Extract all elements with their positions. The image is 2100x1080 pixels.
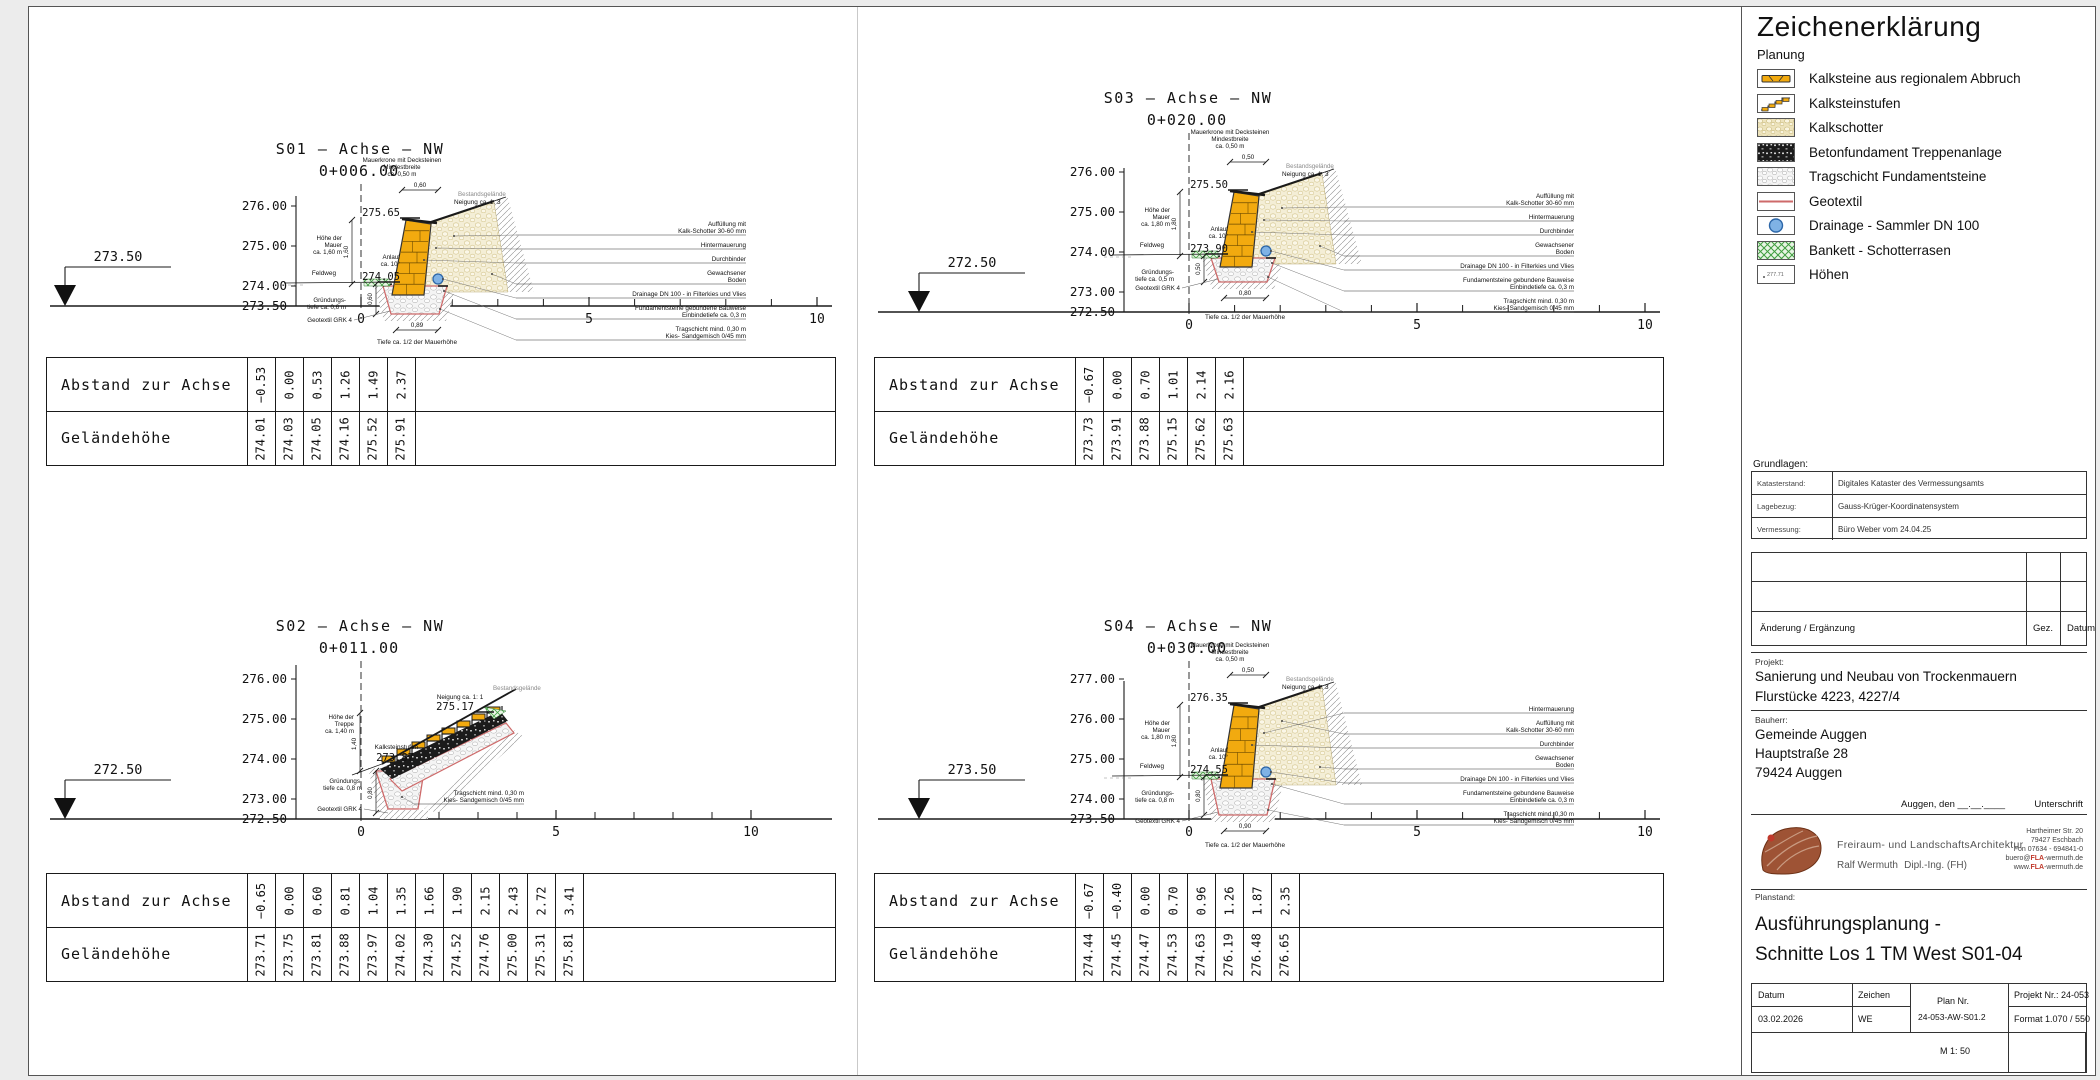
svg-text:1,60: 1,60: [343, 245, 350, 258]
svg-text:0+011.00: 0+011.00: [319, 639, 399, 657]
format-value: Format 1.070 / 550: [2014, 1014, 2090, 1024]
drainage-icon: [1261, 246, 1271, 256]
svg-text:Feldweg: Feldweg: [1140, 242, 1165, 249]
ref-marker: 272.50: [54, 762, 171, 819]
legend-item-label: Geotextil: [1809, 194, 1862, 209]
legend-item: Tragschicht Fundamentsteine: [1757, 165, 2089, 190]
svg-text:ca. 10°: ca. 10°: [381, 261, 401, 268]
abstand-value: 1.66: [415, 874, 443, 927]
svg-text:Fundamentsteine gebundene Bauw: Fundamentsteine gebundene Bauweise: [635, 305, 746, 312]
svg-text:S04 – Achse – NW: S04 – Achse – NW: [1104, 617, 1273, 635]
gelaende-value: 274.47: [1131, 928, 1159, 981]
abstand-value: 0.00: [275, 358, 303, 411]
svg-text:Tragschicht mind. 0,30 m: Tragschicht mind. 0,30 m: [454, 790, 524, 797]
svg-text:275.00: 275.00: [242, 238, 287, 253]
firm-logo: [1757, 824, 1825, 883]
abstand-value: 2.37: [387, 358, 415, 411]
abstand-value: 0.96: [1187, 874, 1215, 927]
svg-text:ca. 0,50 m: ca. 0,50 m: [1216, 143, 1245, 150]
gelaende-value: 273.73: [1075, 412, 1103, 465]
svg-text:Neigung ca. 1: 1: Neigung ca. 1: 1: [437, 694, 484, 701]
sections-area: 273.50276.00275.00274.00273.500510S01 – …: [29, 7, 1741, 1075]
gelaende-row-label: Geländehöhe: [61, 429, 171, 447]
svg-text:Auffüllung mit: Auffüllung mit: [708, 221, 746, 228]
abstand-value: 2.16: [1215, 358, 1243, 411]
aenderung-table: Änderung / Ergänzung Gez. Datum: [1751, 552, 2087, 646]
firm-address: Hartheimer Str. 2079427 EschbachFon 0763…: [2005, 827, 2083, 872]
svg-text:275.00: 275.00: [242, 711, 287, 726]
svg-text:Drainage DN 100 - in Filterkie: Drainage DN 100 - in Filterkies und Vlie…: [1460, 263, 1574, 270]
svg-text:Geotextil GRK 4: Geotextil GRK 4: [1135, 285, 1180, 292]
sheet-divider: [1741, 7, 1742, 1075]
svg-text:Gewachsener: Gewachsener: [1535, 242, 1574, 249]
svg-text:277.00: 277.00: [1070, 671, 1115, 686]
gelaende-value: 276.19: [1215, 928, 1243, 981]
gelaende-value: 274.52: [443, 928, 471, 981]
legend-item: Bankett - Schotterrasen: [1757, 239, 2089, 264]
svg-text:Gründungs-: Gründungs-: [313, 297, 346, 304]
svg-text:tiefe ca. 0,5 m: tiefe ca. 0,5 m: [1135, 276, 1174, 283]
projekt-block: Projekt: Sanierung und Neubau von Trocke…: [1751, 652, 2087, 711]
svg-text:S03 – Achse – NW: S03 – Achse – NW: [1104, 89, 1273, 107]
legend-item-label: Höhen: [1809, 267, 1849, 282]
svg-text:275.00: 275.00: [1070, 204, 1115, 219]
svg-text:274.00: 274.00: [1070, 791, 1115, 806]
svg-text:Höhe der: Höhe der: [317, 235, 342, 242]
legend-items: Kalksteine aus regionalem Abbruch Kalkst…: [1757, 67, 2089, 288]
gelaende-row-label: Geländehöhe: [889, 429, 999, 447]
legend-swatch-schotter-icon: [1757, 118, 1795, 142]
svg-text:Hintermauerung: Hintermauerung: [1529, 706, 1575, 713]
svg-text:0: 0: [357, 825, 365, 840]
svg-text:277.71: 277.71: [1767, 272, 1784, 278]
svg-text:Auffüllung mit: Auffüllung mit: [1536, 720, 1574, 727]
zeichen-label: Zeichen: [1858, 990, 1890, 1000]
svg-text:5: 5: [1413, 318, 1421, 333]
gelaende-value: 273.75: [275, 928, 303, 981]
gelaende-value: 274.01: [247, 412, 275, 465]
abstand-value: 0.00: [275, 874, 303, 927]
svg-text:Mauerkrone mit Decksteinen: Mauerkrone mit Decksteinen: [1191, 129, 1270, 136]
firm-block: Freiraum- und LandschaftsArchitektur Ral…: [1751, 814, 2087, 890]
grundlagen-value: Digitales Kataster des Vermessungsamts: [1838, 479, 1984, 488]
datum-label: Datum: [1758, 990, 1785, 1000]
grundlagen-row: Lagebezug: Gauss-Krüger-Koordinatensyste…: [1752, 495, 2086, 518]
gelaende-value: 273.81: [303, 928, 331, 981]
svg-text:Geotextil GRK 4: Geotextil GRK 4: [317, 806, 362, 813]
svg-text:Treppe: Treppe: [335, 721, 355, 728]
svg-text:Kalk-Schotter 30-60 mm: Kalk-Schotter 30-60 mm: [1506, 727, 1574, 734]
abstand-value: 1.26: [1215, 874, 1243, 927]
abstand-value: 2.43: [499, 874, 527, 927]
gelaende-value: 275.00: [499, 928, 527, 981]
plannr-value: 24-053-AW-S01.2: [1918, 1012, 1986, 1022]
grundlagen-row: Katasterstand: Digitales Kataster des Ve…: [1752, 472, 2086, 495]
abstand-value: 0.60: [303, 874, 331, 927]
svg-text:Tragschicht mind. 0,30 m: Tragschicht mind. 0,30 m: [1504, 298, 1574, 305]
svg-text:Mauer: Mauer: [1152, 214, 1170, 221]
grundlagen-key: Lagebezug:: [1757, 502, 1796, 511]
svg-text:Gründungs-: Gründungs-: [1141, 790, 1174, 797]
svg-text:ca. 0,50 m: ca. 0,50 m: [388, 171, 417, 178]
projekt-line: Flurstücke 4223, 4227/4: [1755, 689, 1900, 704]
abstand-value: −0.67: [1075, 358, 1103, 411]
svg-text:0+020.00: 0+020.00: [1147, 111, 1227, 129]
svg-text:1,80: 1,80: [1171, 734, 1178, 747]
firm-owner: Ralf Wermuth Dipl.-Ing. (FH): [1837, 855, 1967, 872]
svg-text:0,60: 0,60: [368, 293, 374, 305]
svg-text:272.50: 272.50: [242, 811, 287, 826]
drainage-icon: [433, 274, 443, 284]
grundlagen-key: Katasterstand:: [1757, 479, 1805, 488]
gelaende-value: 273.88: [331, 928, 359, 981]
planstand-line: Ausführungsplanung -: [1755, 914, 1941, 936]
sidebar: Zeichenerklärung Planung Kalksteine aus …: [1743, 7, 2095, 1075]
svg-text:Einbindetiefe ca. 0,3 m: Einbindetiefe ca. 0,3 m: [1510, 797, 1574, 804]
legend-item-label: Betonfundament Treppenanlage: [1809, 145, 2002, 160]
plannr-label: Plan Nr.: [1937, 996, 1969, 1006]
legend-subtitle: Planung: [1757, 47, 1805, 62]
gelaende-value: 274.30: [415, 928, 443, 981]
svg-text:Neigung ca. 1: 3: Neigung ca. 1: 3: [454, 199, 501, 206]
aenderung-label: Änderung / Ergänzung: [1760, 623, 1855, 634]
abstand-value: 0.00: [1131, 874, 1159, 927]
legend-item-label: Bankett - Schotterrasen: [1809, 243, 1951, 258]
legend-swatch-tragschicht-icon: [1757, 167, 1795, 191]
gelaende-value: 273.71: [247, 928, 275, 981]
gelaende-value: 275.52: [359, 412, 387, 465]
svg-text:275.65: 275.65: [362, 207, 400, 219]
gelaende-value: 276.48: [1243, 928, 1271, 981]
planstand-block: Planstand: Ausführungsplanung - Schnitte…: [1751, 888, 2087, 983]
svg-text:Durchbinder: Durchbinder: [1540, 228, 1574, 235]
svg-text:ca. 10°: ca. 10°: [1209, 233, 1229, 240]
svg-text:Feldweg: Feldweg: [312, 270, 337, 277]
abstand-value: −0.67: [1075, 874, 1103, 927]
svg-text:S01 – Achse – NW: S01 – Achse – NW: [276, 140, 445, 158]
section-drawing-S03: 272.50276.00275.00274.00273.00272.500510…: [874, 69, 1664, 361]
svg-text:Neigung ca. 1: 3: Neigung ca. 1: 3: [1282, 684, 1329, 691]
bauherr-label: Bauherr:: [1755, 715, 1788, 725]
svg-text:Gründungs-: Gründungs-: [329, 778, 362, 785]
bauherr-line: Gemeinde Auggen: [1755, 727, 1867, 742]
svg-text:0: 0: [1185, 825, 1193, 840]
bauherr-block: Bauherr: Gemeinde Auggen Hauptstraße 28 …: [1751, 710, 2087, 815]
svg-text:Höhe der: Höhe der: [329, 714, 354, 721]
legend-item: Kalksteine aus regionalem Abbruch: [1757, 67, 2089, 92]
svg-text:0: 0: [1185, 318, 1193, 333]
svg-text:273.50: 273.50: [94, 249, 143, 265]
svg-text:Fundamentsteine gebundene Bauw: Fundamentsteine gebundene Bauweise: [1463, 277, 1574, 284]
abstand-value: 2.72: [527, 874, 555, 927]
abstand-value: 1.90: [443, 874, 471, 927]
svg-text:0,50: 0,50: [1242, 667, 1255, 674]
svg-text:Hintermauerung: Hintermauerung: [1529, 214, 1575, 221]
planstand-label: Planstand:: [1755, 892, 1795, 902]
svg-text:10: 10: [809, 312, 825, 327]
svg-text:Kies- Sandgemisch 0/45 mm: Kies- Sandgemisch 0/45 mm: [666, 333, 747, 340]
svg-text:Mindestbreite: Mindestbreite: [1211, 136, 1249, 143]
abstand-row-label: Abstand zur Achse: [889, 892, 1060, 910]
gelaende-value: 275.31: [527, 928, 555, 981]
svg-text:Tragschicht mind. 0,30 m: Tragschicht mind. 0,30 m: [676, 326, 746, 333]
abstand-value: 0.81: [331, 874, 359, 927]
svg-text:Kies- Sandgemisch 0/45 mm: Kies- Sandgemisch 0/45 mm: [1494, 818, 1575, 825]
svg-text:276.00: 276.00: [242, 198, 287, 213]
abstand-value: −0.65: [247, 874, 275, 927]
section-table-S04: Abstand zur Achse Geländehöhe −0.67−0.40…: [874, 873, 1664, 982]
svg-text:5: 5: [552, 825, 560, 840]
svg-text:Durchbinder: Durchbinder: [712, 256, 746, 263]
abstand-value: 1.49: [359, 358, 387, 411]
svg-text:275.17: 275.17: [436, 701, 474, 713]
svg-text:274.00: 274.00: [242, 751, 287, 766]
unterschrift-label: Unterschrift: [2034, 799, 2083, 810]
svg-text:Anlauf: Anlauf: [1210, 747, 1228, 754]
svg-text:0,80: 0,80: [368, 787, 374, 799]
gelaende-value: 275.81: [555, 928, 583, 981]
svg-text:1,40: 1,40: [351, 737, 358, 750]
projektnr-value: Projekt Nr.: 24-053: [2014, 990, 2089, 1000]
svg-text:Mauerkrone mit Decksteinen: Mauerkrone mit Decksteinen: [1191, 642, 1270, 649]
svg-text:Bestandsgelände: Bestandsgelände: [1286, 163, 1334, 170]
svg-text:0,50: 0,50: [1242, 154, 1255, 161]
section-table-S01: Abstand zur Achse Geländehöhe −0.530.000…: [46, 357, 836, 466]
section-drawing-S04: 273.50277.00276.00275.00274.00273.500510…: [874, 611, 1664, 873]
svg-text:1,80: 1,80: [1171, 217, 1178, 230]
bauherr-line: 79424 Auggen: [1755, 765, 1842, 780]
ort-datum-line: Auggen, den __.__.____: [1901, 799, 2005, 810]
svg-text:276.00: 276.00: [1070, 164, 1115, 179]
section-table-S03: Abstand zur Achse Geländehöhe −0.670.000…: [874, 357, 1664, 466]
svg-text:Tragschicht mind. 0,30 m: Tragschicht mind. 0,30 m: [1504, 811, 1574, 818]
svg-text:S02 – Achse – NW: S02 – Achse – NW: [276, 617, 445, 635]
firm-name-line: Freiraum- und LandschaftsArchitektur: [1837, 839, 2023, 851]
abstand-value: 0.70: [1131, 358, 1159, 411]
gelaende-value: 274.53: [1159, 928, 1187, 981]
svg-text:Gründungs-: Gründungs-: [1141, 269, 1174, 276]
legend-swatch-geotextil-icon: [1757, 192, 1795, 216]
legend-swatch-bankett-icon: [1757, 241, 1795, 265]
abstand-value: 2.15: [471, 874, 499, 927]
aenderung-datum-label: Datum: [2067, 623, 2095, 634]
planstand-line: Schnitte Los 1 TM West S01-04: [1755, 944, 2023, 966]
legend-item: 277.71 Höhen: [1757, 263, 2089, 288]
abstand-value: 2.14: [1187, 358, 1215, 411]
svg-text:Boden: Boden: [1556, 762, 1575, 769]
legend-item-label: Kalksteine aus regionalem Abbruch: [1809, 71, 2021, 86]
svg-text:ca. 1,60 m: ca. 1,60 m: [313, 249, 342, 256]
svg-text:276.00: 276.00: [242, 671, 287, 686]
abstand-value: 2.35: [1271, 874, 1299, 927]
aenderung-gez-label: Gez.: [2033, 623, 2053, 634]
svg-text:Durchbinder: Durchbinder: [1540, 741, 1574, 748]
gelaende-value: 274.05: [303, 412, 331, 465]
svg-text:273.00: 273.00: [242, 791, 287, 806]
svg-text:Höhe der: Höhe der: [1145, 207, 1170, 214]
svg-text:275.50: 275.50: [1190, 179, 1228, 191]
svg-text:274.00: 274.00: [1070, 244, 1115, 259]
legend-swatch-hoehen-icon: 277.71: [1757, 265, 1795, 289]
svg-text:272.50: 272.50: [94, 762, 143, 778]
abstand-value: 1.01: [1159, 358, 1187, 411]
legend-item-label: Drainage - Sammler DN 100: [1809, 218, 1979, 233]
svg-text:Kalk-Schotter 30-60 mm: Kalk-Schotter 30-60 mm: [678, 228, 746, 235]
gelaende-row-label: Geländehöhe: [61, 945, 171, 963]
svg-text:Anlauf: Anlauf: [382, 254, 400, 261]
svg-text:0,80: 0,80: [1196, 790, 1202, 802]
gelaende-value: 275.15: [1159, 412, 1187, 465]
legend-swatch-kalksteine-icon: [1757, 69, 1795, 93]
abstand-value: 0.53: [303, 358, 331, 411]
svg-text:276.35: 276.35: [1190, 692, 1228, 704]
legend-item: Drainage - Sammler DN 100: [1757, 214, 2089, 239]
grundlagen-table: Katasterstand: Digitales Kataster des Ve…: [1751, 471, 2087, 539]
svg-text:Tiefe ca. 1/2 der Mauerhöhe: Tiefe ca. 1/2 der Mauerhöhe: [1205, 842, 1285, 849]
svg-text:ca. 1,80 m: ca. 1,80 m: [1141, 734, 1170, 741]
massstab-value: M 1: 50: [1940, 1046, 1970, 1056]
abstand-value: 1.87: [1243, 874, 1271, 927]
gelaende-value: 274.16: [331, 412, 359, 465]
gelaende-value: 273.91: [1103, 412, 1131, 465]
abstand-value: 3.41: [555, 874, 583, 927]
svg-text:273.50: 273.50: [948, 762, 997, 778]
legend-item: Kalkschotter: [1757, 116, 2089, 141]
svg-text:Mindestbreite: Mindestbreite: [1211, 649, 1249, 656]
y-axis: 277.00276.00275.00274.00273.50: [1070, 671, 1124, 826]
abstand-value: 1.35: [387, 874, 415, 927]
svg-text:273.00: 273.00: [1070, 284, 1115, 299]
y-axis: 276.00275.00274.00273.00272.50: [242, 665, 296, 826]
svg-text:273.50: 273.50: [1070, 811, 1115, 826]
svg-text:ca. 1,40 m: ca. 1,40 m: [325, 728, 354, 735]
legend-swatch-beton-icon: [1757, 143, 1795, 167]
gelaende-value: 275.91: [387, 412, 415, 465]
svg-text:0,50: 0,50: [1196, 263, 1202, 275]
svg-text:Geotextil GRK 4: Geotextil GRK 4: [1135, 818, 1180, 825]
svg-text:0,60: 0,60: [414, 182, 427, 189]
abstand-row-label: Abstand zur Achse: [61, 892, 232, 910]
svg-text:tiefe ca. 0,8 m: tiefe ca. 0,8 m: [1135, 797, 1174, 804]
abstand-value: −0.40: [1103, 874, 1131, 927]
plan-info-table: Datum 03.02.2026 Zeichen WE Plan Nr. 24-…: [1751, 983, 2087, 1073]
svg-text:Feldweg: Feldweg: [1140, 763, 1165, 770]
gelaende-value: 273.97: [359, 928, 387, 981]
abstand-value: 1.04: [359, 874, 387, 927]
zeichen-value: WE: [1858, 1014, 1873, 1024]
grundlagen-value: Gauss-Krüger-Koordinatensystem: [1838, 502, 1959, 511]
legend-swatch-drainage-icon: [1757, 216, 1795, 240]
plan-sheet: 273.50276.00275.00274.00273.500510S01 – …: [28, 6, 2096, 1076]
svg-text:Einbindetiefe ca. 0,3 m: Einbindetiefe ca. 0,3 m: [1510, 284, 1574, 291]
gelaende-value: 274.45: [1103, 928, 1131, 981]
datum-value: 03.02.2026: [1758, 1014, 1803, 1024]
svg-text:Einbindetiefe ca. 0,3 m: Einbindetiefe ca. 0,3 m: [682, 312, 746, 319]
drainage-icon: [1261, 767, 1271, 777]
svg-text:10: 10: [1637, 825, 1653, 840]
svg-text:Mauer: Mauer: [1152, 727, 1170, 734]
svg-text:Hintermauerung: Hintermauerung: [701, 242, 747, 249]
projekt-label: Projekt:: [1755, 657, 1784, 667]
svg-text:274.00: 274.00: [242, 278, 287, 293]
abstand-value: 1.26: [331, 358, 359, 411]
svg-text:Tiefe ca. 1/2 der Mauerhöhe: Tiefe ca. 1/2 der Mauerhöhe: [1205, 314, 1285, 321]
legend-swatch-stufen-icon: [1757, 94, 1795, 118]
svg-text:Mauer: Mauer: [324, 242, 342, 249]
gelaende-value: 274.02: [387, 928, 415, 981]
svg-text:273.50: 273.50: [242, 298, 287, 313]
svg-text:5: 5: [1413, 825, 1421, 840]
grundlagen-label: Grundlagen:: [1753, 459, 1808, 470]
svg-text:10: 10: [743, 825, 759, 840]
ref-marker: 273.50: [908, 762, 1025, 819]
y-axis: 276.00275.00274.00273.00272.50: [1070, 164, 1124, 319]
svg-text:Boden: Boden: [728, 277, 747, 284]
ref-marker: 272.50: [908, 255, 1025, 312]
svg-text:0,90: 0,90: [1239, 823, 1252, 830]
svg-text:Höhe der: Höhe der: [1145, 720, 1170, 727]
svg-text:tiefe ca. 0,8 m: tiefe ca. 0,8 m: [323, 785, 362, 792]
svg-text:10: 10: [1637, 318, 1653, 333]
svg-text:0: 0: [357, 312, 365, 327]
gelaende-value: 274.44: [1075, 928, 1103, 981]
legend-item-label: Tragschicht Fundamentsteine: [1809, 169, 1986, 184]
projekt-line: Sanierung und Neubau von Trockenmauern: [1755, 669, 2017, 684]
svg-text:0,80: 0,80: [1239, 290, 1252, 297]
gelaende-value: 273.88: [1131, 412, 1159, 465]
svg-text:Kies- Sandgemisch 0/45 mm: Kies- Sandgemisch 0/45 mm: [444, 797, 525, 804]
svg-text:276.00: 276.00: [1070, 711, 1115, 726]
svg-text:Auffüllung mit: Auffüllung mit: [1536, 193, 1574, 200]
svg-text:Kalk-Schotter 30-60 mm: Kalk-Schotter 30-60 mm: [1506, 200, 1574, 207]
svg-text:Neigung ca. 1: 3: Neigung ca. 1: 3: [1282, 171, 1329, 178]
svg-text:ca. 10°: ca. 10°: [1209, 754, 1229, 761]
svg-text:Boden: Boden: [1556, 249, 1575, 256]
gelaende-value: 274.76: [471, 928, 499, 981]
grundlagen-row: Vermessung: Büro Weber vom 24.04.25: [1752, 518, 2086, 540]
section-table-S02: Abstand zur Achse Geländehöhe −0.650.000…: [46, 873, 836, 982]
legend-item: Kalksteinstufen: [1757, 92, 2089, 117]
svg-text:Gewachsener: Gewachsener: [707, 270, 746, 277]
svg-text:Bestandsgelände: Bestandsgelände: [1286, 676, 1334, 683]
legend-item-label: Kalkschotter: [1809, 120, 1883, 135]
svg-text:272.50: 272.50: [948, 255, 997, 271]
svg-text:Mindestbreite: Mindestbreite: [383, 164, 421, 171]
legend-item: Betonfundament Treppenanlage: [1757, 141, 2089, 166]
section-drawing-S02: 272.50276.00275.00274.00273.00272.500510…: [46, 611, 836, 873]
svg-text:0,89: 0,89: [411, 322, 424, 329]
svg-text:Tiefe ca. 1/2 der Mauerhöhe: Tiefe ca. 1/2 der Mauerhöhe: [377, 339, 457, 346]
svg-text:272.50: 272.50: [1070, 304, 1115, 319]
abstand-value: 0.00: [1103, 358, 1131, 411]
svg-text:tiefe ca. 0,6 m: tiefe ca. 0,6 m: [307, 304, 346, 311]
svg-text:Drainage DN 100 - in Filterkie: Drainage DN 100 - in Filterkies und Vlie…: [632, 291, 746, 298]
abstand-value: −0.53: [247, 358, 275, 411]
abstand-value: 0.70: [1159, 874, 1187, 927]
grundlagen-value: Büro Weber vom 24.04.25: [1838, 525, 1931, 534]
svg-text:5: 5: [585, 312, 593, 327]
svg-text:Geotextil GRK 4: Geotextil GRK 4: [307, 317, 352, 324]
legend-item-label: Kalksteinstufen: [1809, 96, 1901, 111]
gelaende-row-label: Geländehöhe: [889, 945, 999, 963]
svg-text:Anlauf: Anlauf: [1210, 226, 1228, 233]
gelaende-value: 274.63: [1187, 928, 1215, 981]
gelaende-value: 275.63: [1215, 412, 1243, 465]
svg-text:Mauerkrone mit Decksteinen: Mauerkrone mit Decksteinen: [363, 157, 442, 164]
grundlagen-key: Vermessung:: [1757, 525, 1801, 534]
svg-text:Bestandsgelände: Bestandsgelände: [493, 685, 541, 692]
gelaende-value: 275.62: [1187, 412, 1215, 465]
